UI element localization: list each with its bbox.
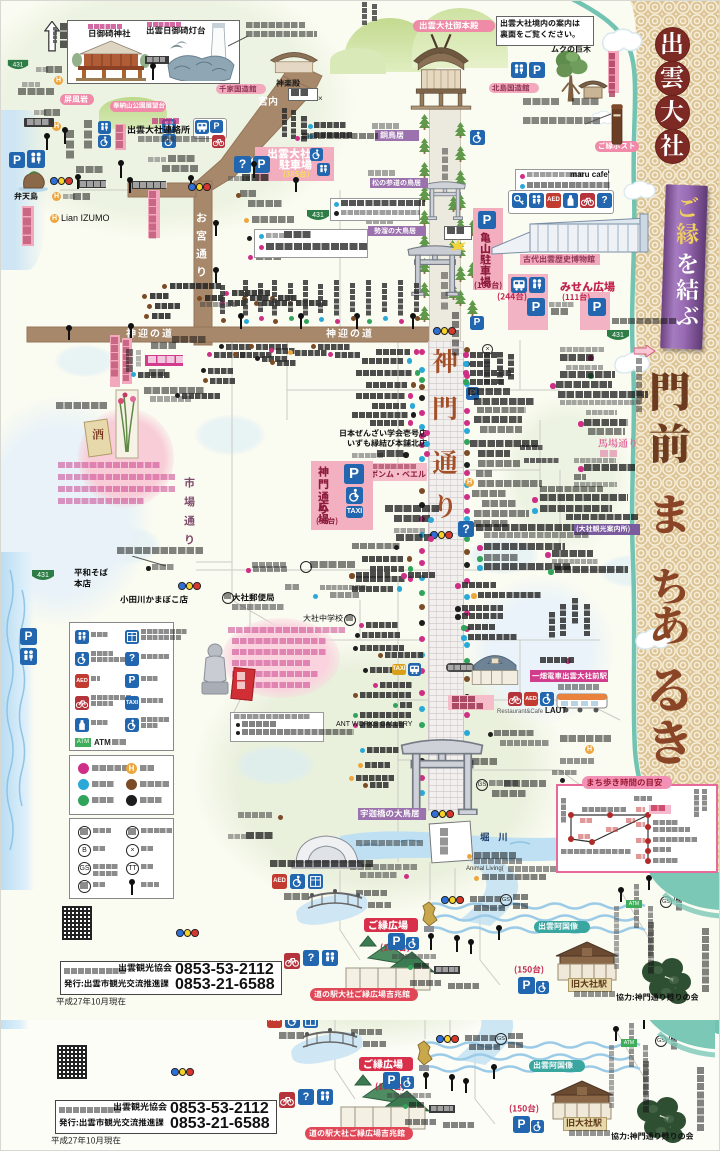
svg-text:431: 431 xyxy=(612,332,624,339)
svg-text:431: 431 xyxy=(37,572,49,579)
svg-text:431: 431 xyxy=(13,61,24,68)
svg-text:431: 431 xyxy=(312,212,324,219)
